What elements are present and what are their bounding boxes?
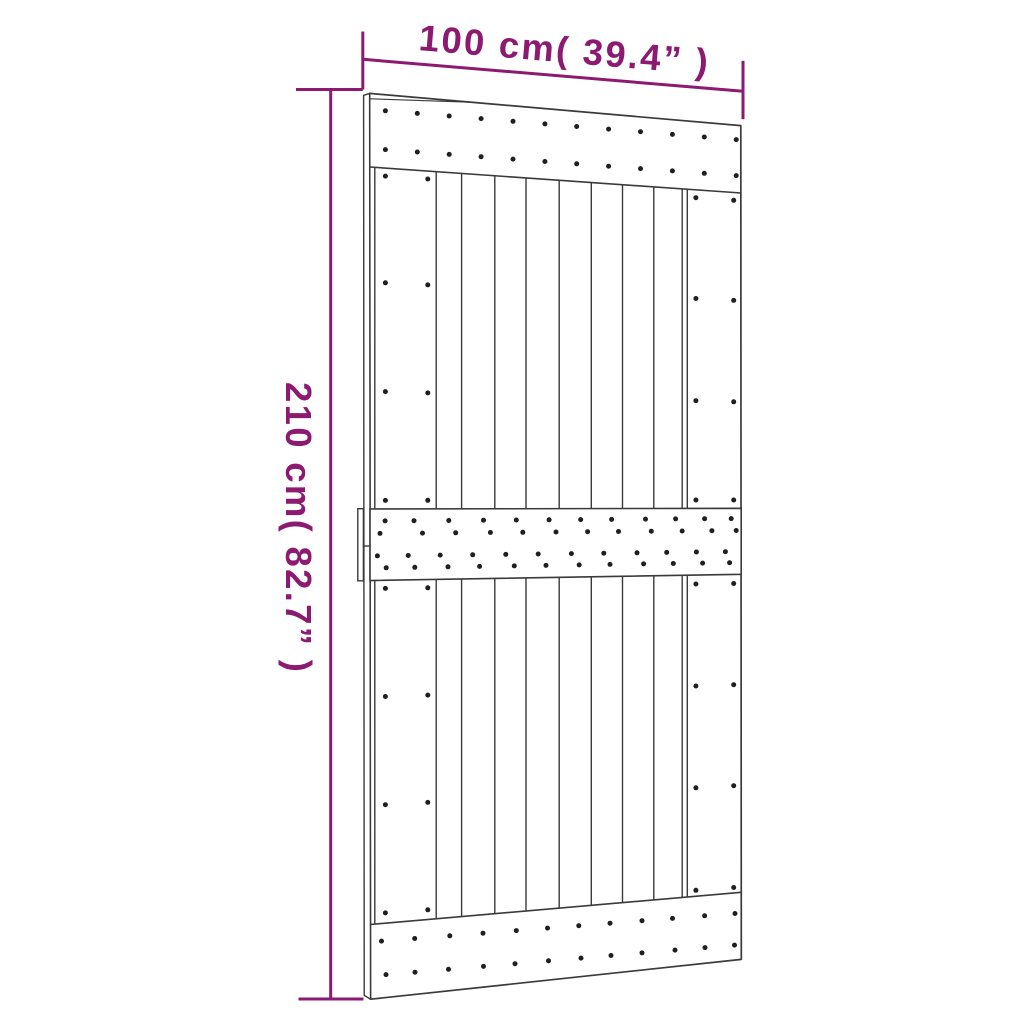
svg-text:210 cm( 82.7” ): 210 cm( 82.7” ) [278, 382, 319, 674]
